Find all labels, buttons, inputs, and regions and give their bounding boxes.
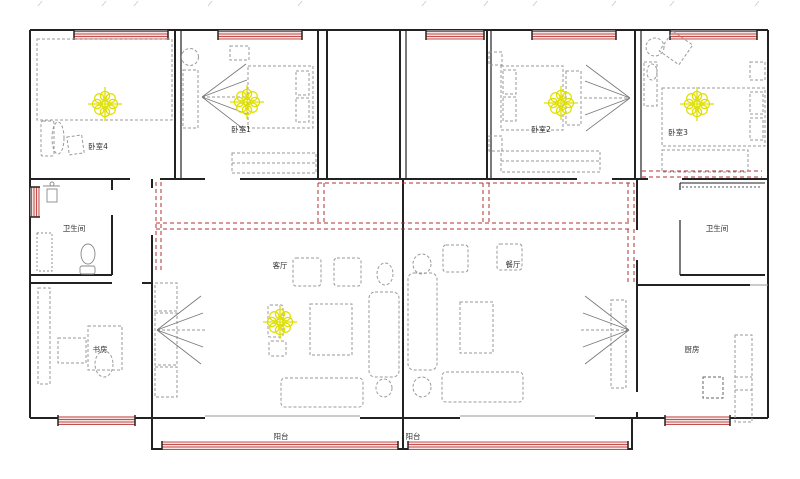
wardrobe (183, 70, 198, 128)
chair (646, 38, 664, 56)
window-top-4 (532, 30, 616, 40)
room-label-bedroom4: 卧室4 (88, 141, 108, 151)
tv-cabinet (155, 283, 177, 311)
room-label-bedroom3: 卧室3 (668, 127, 688, 137)
nightstand (750, 62, 765, 80)
washer (37, 233, 52, 271)
window-study (58, 415, 135, 426)
faucet-knob (50, 182, 54, 186)
door-fan (584, 65, 630, 131)
counter (735, 335, 752, 422)
window-top-2 (218, 30, 302, 40)
sofa (408, 273, 437, 370)
ceiling-light-icon (680, 87, 714, 121)
room-label-bathroom-left: 卫生间 (63, 223, 86, 233)
floor-plan-page: 卧室4 卧室1 卧室2 卧室3 卫生间 客厅 餐厅 卫生间 书房 厨房 阳台 阳… (0, 0, 800, 479)
cabinet (644, 62, 657, 106)
chair (95, 351, 113, 377)
room-label-dining: 餐厅 (506, 260, 521, 269)
kitchen-furniture (703, 335, 752, 422)
bedroom3-furniture (644, 31, 765, 172)
windows (30, 30, 757, 450)
side-table (58, 338, 86, 363)
stool (269, 341, 286, 356)
armchair (443, 245, 468, 272)
room-label-study: 书房 (93, 344, 108, 354)
stool (182, 49, 199, 66)
room-label-balcony-right: 阳台 (406, 431, 421, 441)
coffee-table (460, 302, 493, 353)
pillow (503, 97, 516, 121)
window-balcony-right (408, 441, 628, 450)
room-label-bedroom1: 卧室1 (231, 124, 251, 134)
pillow (750, 92, 763, 114)
armchair (334, 258, 361, 286)
dimension-ticks (38, 1, 759, 6)
floor-lamp (413, 254, 431, 274)
coffee-table (310, 304, 352, 355)
window-kitchen (665, 415, 730, 426)
room-label-kitchen: 厨房 (685, 344, 700, 354)
ceiling-light-icon (263, 305, 297, 339)
window-left (30, 187, 40, 217)
tv-cabinet (155, 367, 177, 397)
nightstand (230, 46, 249, 60)
room-label-living: 客厅 (273, 260, 288, 270)
tv-fan (581, 296, 629, 364)
room-label-bathroom-right: 卫生间 (706, 223, 729, 233)
console-table (442, 372, 523, 402)
console-table (281, 378, 363, 407)
floor-lamp (413, 377, 431, 397)
ceiling-light-icon (88, 87, 122, 121)
room-label-balcony-left: 阳台 (274, 431, 289, 441)
floor-lamp (376, 379, 392, 397)
floor-lamp (377, 263, 393, 285)
pillow (296, 98, 309, 122)
ceiling-light-icon (230, 85, 264, 119)
walls (30, 30, 768, 449)
tv-cabinet (155, 313, 177, 365)
pillow (750, 118, 763, 140)
living-room-furniture (155, 258, 399, 407)
side-table (67, 135, 84, 155)
study-furniture (38, 288, 122, 384)
tv-fan (157, 296, 205, 364)
bookshelf (38, 288, 50, 384)
ceiling-light-icon (544, 86, 578, 120)
toilet-tank (80, 266, 95, 274)
low-cabinet (501, 151, 600, 172)
low-cabinet (662, 150, 748, 172)
toilet-bowl (81, 244, 95, 264)
bedroom2-furniture (489, 52, 630, 172)
sofa (369, 292, 399, 377)
window-top-3 (426, 30, 484, 40)
pillow (296, 71, 309, 95)
tv-cabinet (611, 300, 626, 388)
room-label-bedroom2: 卧室2 (531, 124, 551, 134)
window-balcony-left (162, 441, 398, 450)
stove (703, 377, 723, 398)
armchair (293, 258, 321, 286)
stool (647, 64, 657, 80)
pillow (503, 70, 516, 94)
basin (47, 189, 57, 202)
electrical-wiring (156, 171, 762, 282)
floor-plan-canvas: 卧室4 卧室1 卧室2 卧室3 卫生间 客厅 餐厅 卫生间 书房 厨房 阳台 阳… (0, 0, 800, 479)
